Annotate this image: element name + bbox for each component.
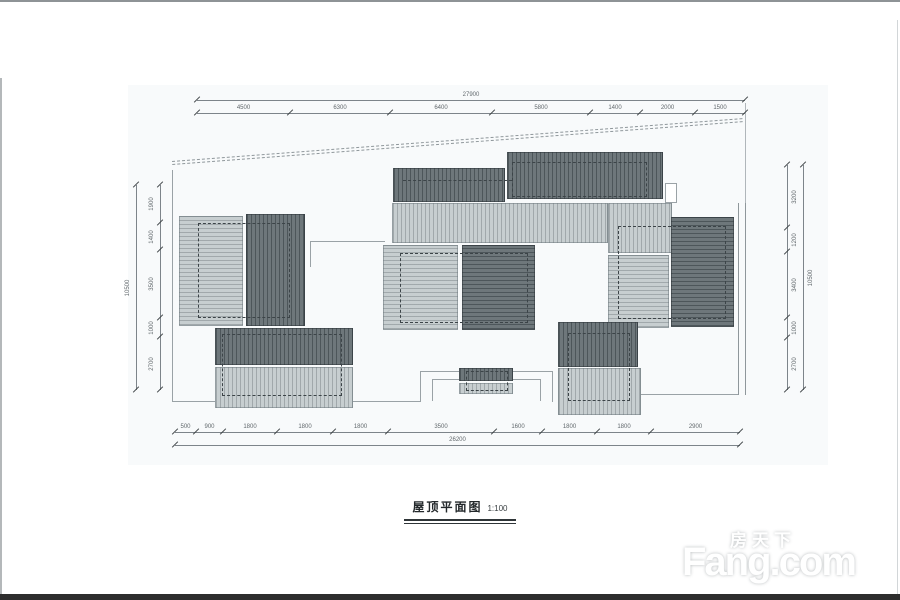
overhang-dash-bottom-right [568, 333, 630, 401]
dim-bottom-label: 1600 [498, 423, 538, 431]
right-edge-line [897, 20, 898, 594]
dim-right-label: 3200 [791, 177, 799, 217]
portico-step-right-h [513, 371, 553, 372]
dim-right-label: 3400 [791, 265, 799, 305]
dim-bottom-overall-label: 26200 [438, 436, 478, 444]
title-text: 屋顶平面图 [412, 500, 482, 514]
dim-top-overall-label: 27900 [451, 91, 491, 99]
drawing-canvas: 4500630064005800140020001500279005009001… [0, 0, 900, 600]
overhang-dash-left [198, 223, 290, 318]
dim-left-label: 1400 [148, 217, 156, 257]
dim-bottom-overall-line [175, 445, 740, 446]
dim-top-label: 1500 [700, 104, 740, 112]
roof-plan-screenshot: { "title": {"text": "屋顶平面图", "scale": "1… [0, 0, 900, 600]
dim-right-overall-line [803, 165, 804, 390]
portico-inner-step-left [432, 379, 460, 380]
portico-inner-step-right-v [540, 379, 541, 401]
roof-notch [665, 183, 677, 203]
title-scale: 1:100 [487, 504, 507, 513]
dim-right-overall-label: 10500 [807, 258, 815, 298]
dim-bottom-label: 1800 [285, 423, 325, 431]
dim-left-line [160, 185, 161, 390]
dim-left-overall-label: 10500 [124, 268, 132, 308]
overhang-dash-center [400, 253, 528, 323]
dim-right-label: 2700 [791, 344, 799, 384]
overhang-dash-top-left [403, 180, 512, 181]
dim-top-overall-line [197, 100, 745, 101]
dim-left-label: 3500 [148, 264, 156, 304]
dim-bottom-label: 3500 [421, 423, 461, 431]
roof-top-center-dark-low [393, 168, 505, 202]
dim-right-line [787, 165, 788, 390]
eave-outline-bottom-right [641, 394, 738, 395]
right-boundary-wall [738, 203, 746, 395]
dim-bottom-label: 900 [190, 423, 230, 431]
bottom-bar [0, 594, 900, 600]
dim-right-label: 1000 [791, 308, 799, 348]
eave-outline-left [172, 170, 173, 402]
drawing-title: 屋顶平面图1:100 [360, 498, 560, 521]
dim-bottom-label: 1800 [230, 423, 270, 431]
dim-top-label: 5800 [521, 104, 561, 112]
dim-top-line [197, 113, 745, 114]
dim-bottom-label: 1800 [604, 423, 644, 431]
connector-line [310, 241, 385, 242]
portico-step-left-h [420, 371, 460, 372]
watermark-logo: Fang.com [682, 540, 855, 585]
dim-bottom-line [175, 432, 740, 433]
top-edge-line [0, 0, 900, 2]
dim-top-label: 2000 [648, 104, 688, 112]
dim-top-label: 6300 [320, 104, 360, 112]
dim-left-label: 1000 [148, 308, 156, 348]
dim-top-label: 6400 [421, 104, 461, 112]
portico-step-left-v [420, 371, 421, 402]
connector-step [310, 241, 311, 267]
portico-inner-step-left-v [432, 379, 433, 401]
dim-bottom-label: 1800 [341, 423, 381, 431]
roof-center-band-light [392, 203, 608, 243]
left-edge-line [0, 78, 2, 594]
overhang-dash-top [512, 162, 647, 197]
portico-inner-step-right [513, 379, 541, 380]
dim-top-label: 1400 [595, 104, 635, 112]
dim-extension-right [745, 103, 746, 203]
dim-right-label: 1200 [791, 220, 799, 260]
dim-left-overall-line [136, 185, 137, 390]
dim-bottom-label: 2900 [676, 423, 716, 431]
dim-bottom-label: 1800 [550, 423, 590, 431]
dim-left-label: 2700 [148, 344, 156, 384]
overhang-dash-right [618, 226, 726, 319]
fang-watermark: 房天下 Fang.com [682, 528, 892, 592]
portico-step-right-v [552, 371, 553, 402]
overhang-dash-bottom-left [222, 334, 342, 396]
overhang-dash-portico [466, 371, 508, 391]
dim-top-label: 4500 [224, 104, 264, 112]
